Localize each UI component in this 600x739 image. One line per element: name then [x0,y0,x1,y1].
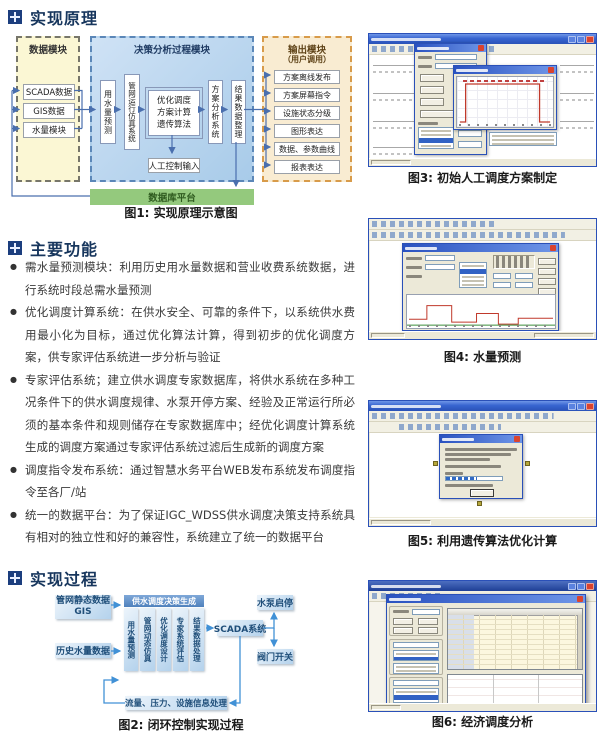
chart-strip [373,93,415,106]
gis-line1: 管网静态数据 [56,596,110,607]
manual-input-box: 人工控制输入 [148,158,200,173]
chart-strip [373,121,415,134]
maximize-icon [577,36,585,43]
list-item-text: 专家评估系统；建立供水调度专家数据库，将供水系统在多种工况条件下的供水调度规律、… [25,369,355,459]
output-item: 方案屏幕指令 [274,88,340,102]
listbox [418,127,454,149]
list-row [462,280,484,282]
diagram2-caption: 图2: 闭环控制实现过程 [8,716,354,733]
close-icon [514,436,520,442]
status-field [371,333,405,338]
curve-panel [447,674,583,704]
selection-handle [433,461,438,466]
status-field [371,705,401,710]
input-field [515,273,533,279]
window-title-text [371,38,441,41]
output-item: 方案离线发布 [274,70,340,84]
status-bar [369,703,596,711]
close-icon [548,67,554,73]
list-row [492,143,554,145]
field-label [418,122,438,125]
list-row [396,691,436,693]
core-line-2: 方案计算 [157,107,191,119]
window-toolbar [369,411,596,422]
output-module: 输出模块 （用户调用） 方案离线发布 方案屏幕指令 设施状态分级 图形表达 数据… [262,36,352,182]
list-row [421,130,451,132]
list-item: ● 统一的数据平台：为了保证IGC_WDSS供水调度决策支持系统具有相对的独立性… [10,504,355,549]
dialog-titlebar [440,435,522,443]
diagram2: 管网静态数据 GIS 历史水量数据 供水调度决策生成 用水量预测 管网动态仿真 … [8,592,354,714]
window-toolbar [369,230,596,241]
dropdown-field [393,642,439,648]
core-line-3: 遗传算法 [157,119,191,131]
pump-curve-dialog [453,65,557,130]
x-axis-ticks [409,325,553,327]
minimize-icon [568,403,576,410]
input-field [458,130,482,137]
field-label [406,266,422,269]
ga-progress-dialog [439,434,523,499]
listbox [393,663,439,674]
input-field [425,264,455,270]
table-body [448,615,578,669]
text-line [445,465,501,468]
field-label [418,65,432,68]
input-field [493,282,511,288]
dialog-title-text [389,598,421,601]
panel-divider [538,675,539,703]
section-principle-header: 实现原理 [8,5,98,29]
button [393,627,413,634]
field-label [418,56,432,59]
plus-icon [8,10,22,24]
input-field [435,54,477,60]
window-titlebar [369,401,596,411]
dialog-title-text [442,438,474,441]
list-item-text: 需水量预测模块：利用历史用水量数据和营业收费系统数据，进行系统时段总需水量预测 [25,256,355,301]
display-group [389,677,443,705]
text-line [445,448,517,451]
section-process-header: 实现过程 [8,566,98,590]
output-item: 数据、参数曲线 [274,142,340,156]
figure4-window [368,218,597,340]
input-field [515,282,533,288]
close-icon [586,403,594,410]
status-bar [369,158,596,166]
panel-divider [493,675,494,703]
figure5-caption: 图5: 利用遗传算法优化计算 [368,532,597,549]
history-water-box: 历史水量数据 [55,643,111,658]
list-item: ● 专家评估系统；建立供水调度专家数据库，将供水系统在多种工况条件下的供水调度规… [10,369,355,459]
button [393,618,413,625]
window-title-text [371,405,441,408]
value-list [489,132,557,146]
list-item-text: 优化调度计算系统：在供水安全、可靠的条件下，以系统供水费用最小化为目标，通过优化… [25,301,355,369]
simulation-box: 管网运行仿真系统 [124,74,140,150]
list-row [462,284,484,286]
figure4 [368,218,597,340]
dialog-title-text [456,69,488,72]
step-chart [456,76,554,128]
section-title: 实现原理 [30,5,98,29]
text-line [445,484,493,487]
column-simulation: 管网动态仿真 [140,608,154,671]
list-item: ● 需水量预测模块：利用历史用水量数据和营业收费系统数据，进行系统时段总需水量预… [10,256,355,301]
chart-strip [560,93,594,106]
figure3-caption: 图3: 初始人工调度方案制定 [368,169,597,186]
economic-analysis-dialog [386,594,586,706]
minimize-icon [568,583,576,590]
plus-icon [8,241,22,255]
forecast-step-line [407,295,555,328]
listbox [393,650,439,661]
field-label [406,257,422,260]
decision-module-title: 决策分析过程模块 [92,42,252,56]
window-buttons [568,403,594,410]
figure4-caption: 图4: 水量预测 [368,348,597,365]
feedback-bar: 流量、压力、设施信息处理 [125,696,227,710]
bullet-icon: ● [10,459,17,504]
button [418,627,438,634]
data-module-title: 数据模块 [18,42,78,56]
dropdown-field [412,609,440,615]
analysis-box: 方案分析系统 [208,80,223,144]
selected-row [394,695,438,700]
figure6 [368,580,597,712]
close-icon [586,36,594,43]
bullet-icon: ● [10,504,17,549]
chart-strip [560,121,594,134]
text-line [445,458,490,461]
decision-columns: 用水量预测 管网动态仿真 优化调度设计 专家系统评估 结果数据处理 [124,608,204,671]
dialog-button [420,74,444,82]
list-row [421,145,451,147]
gis-data-box: GIS数据 [23,103,75,119]
forecast-chart [406,294,556,329]
decision-module: 决策分析过程模块 用水量预测 管网运行仿真系统 优化调度 方案计算 遗传算法 人… [90,36,254,182]
selection-handle [477,501,482,506]
output-item: 图形表达 [274,124,340,138]
dialog-title-text [405,247,437,250]
dropdown-list [459,262,487,288]
list-item-text: 统一的数据平台：为了保证IGC_WDSS供水调度决策支持系统具有相对的独立性和好… [25,504,355,549]
text-line [445,453,511,456]
forecast-box: 用水量预测 [100,80,116,144]
functions-list: ● 需水量预测模块：利用历史用水量数据和营业收费系统数据，进行系统时段总需水量预… [10,256,355,549]
window-buttons [568,36,594,43]
forecast-button [538,258,556,265]
column-expert: 专家系统评估 [173,608,187,671]
close-icon [478,45,484,51]
x-axis-ticks [459,124,551,126]
calculate-button [538,268,556,275]
close-icon [586,583,594,590]
valve-box: 阀门开关 [257,649,293,664]
page: 实现原理 数据模块 SCADA数据 GIS数据 水量模块 决策分析过程模块 用水… [0,0,600,739]
list-row [396,670,436,672]
dialog-title-text [417,47,449,50]
list-row [421,134,451,136]
dialog-titlebar [387,595,585,603]
button [418,618,438,625]
bullet-icon: ● [10,256,17,301]
maximize-icon [577,583,585,590]
gis-static-data-box: 管网静态数据 GIS [55,595,111,619]
maximize-icon [577,403,585,410]
window-buttons [568,583,594,590]
list-row [492,139,554,141]
field-label [393,610,409,613]
input-field [493,273,511,279]
water-module-box: 水量模块 [23,122,75,138]
output-module-subtitle: （用户调用） [264,54,350,65]
close-icon [577,596,583,602]
result-box: 结果数据整理 [231,80,246,144]
field-label [406,275,422,278]
forecast-dialog [402,243,559,331]
parameter-group [389,606,443,636]
dialog-titlebar [415,44,486,52]
list-row [396,653,436,655]
output-item: 设施状态分级 [274,106,340,120]
chart-strip [373,65,415,78]
dialog-titlebar [403,244,558,252]
input-field [458,141,482,148]
selection-handle [525,461,530,466]
window-titlebar [369,581,596,591]
data-module: 数据模块 SCADA数据 GIS数据 水量模块 [16,36,80,182]
close-icon [550,245,556,251]
optimization-core-box: 优化调度 方案计算 遗传算法 [148,90,200,136]
scada-data-box: SCADA数据 [23,84,75,100]
core-line-1: 优化调度 [157,95,191,107]
section-title: 实现过程 [30,566,98,590]
dialog-titlebar [454,66,556,74]
database-platform-bar: 数据库平台 [90,189,254,205]
figure5-window [368,400,597,527]
list-item: ● 调度指令发布系统：通过智慧水务平台WEB发布系统发布调度指令至各厂/站 [10,459,355,504]
minimize-icon [568,36,576,43]
list-row [462,276,484,278]
bullet-icon: ● [10,369,17,459]
input-field [425,255,455,261]
figure5 [368,400,597,527]
chart-tick-row [463,80,547,82]
status-bar [369,331,596,339]
figure3-window [368,33,597,167]
gis-line2: GIS [74,607,91,618]
pump-box: 水泵启停 [257,595,293,610]
column-result: 结果数据处理 [190,608,204,671]
figure6-caption: 图6: 经济调度分析 [368,713,597,730]
dialog-button [420,86,444,94]
status-field [371,520,431,525]
column-optimization: 优化调度设计 [157,608,171,671]
listbox [393,688,439,703]
figure6-window [368,580,597,712]
column-forecast: 用水量预测 [124,608,138,671]
window-toolbar [369,422,596,433]
list-row [396,666,436,668]
progress-bar [445,476,503,481]
window-title-text [371,585,441,588]
selected-row [419,138,453,143]
diagram1-caption: 图1: 实现原理示意图 [8,204,354,221]
dialog-button [420,98,444,106]
progress-fill [446,477,477,480]
output-item: 报表表达 [274,160,340,174]
ok-button [470,489,494,497]
diagram1: 数据模块 SCADA数据 GIS数据 水量模块 决策分析过程模块 用水量预测 管… [8,36,354,208]
red-step-line [457,77,553,127]
status-field [371,160,411,165]
decision-header-bar: 供水调度决策生成 [124,595,204,607]
status-bar [369,518,596,526]
table-scrollbar [577,615,582,669]
dropdown-field [393,680,439,686]
selected-row [460,269,486,274]
economic-data-table [447,608,583,670]
formula-area [493,255,535,269]
selection-group [389,639,443,675]
progress-label [445,472,463,475]
list-item: ● 优化调度计算系统：在供水安全、可靠的条件下，以系统供水费用最小化为目标，通过… [10,301,355,369]
plus-icon [8,571,22,585]
list-item-text: 调度指令发布系统：通过智慧水务平台WEB发布系统发布调度指令至各厂/站 [25,459,355,504]
list-row [492,135,554,137]
chart-strip [560,65,594,78]
bullet-icon: ● [10,301,17,369]
scada-box: SCADA系统 [217,620,263,636]
window-toolbar [369,219,596,230]
status-field [534,333,594,338]
save-button [538,278,556,285]
figure3 [368,33,597,167]
list-row [462,265,484,267]
selected-row [394,657,438,661]
